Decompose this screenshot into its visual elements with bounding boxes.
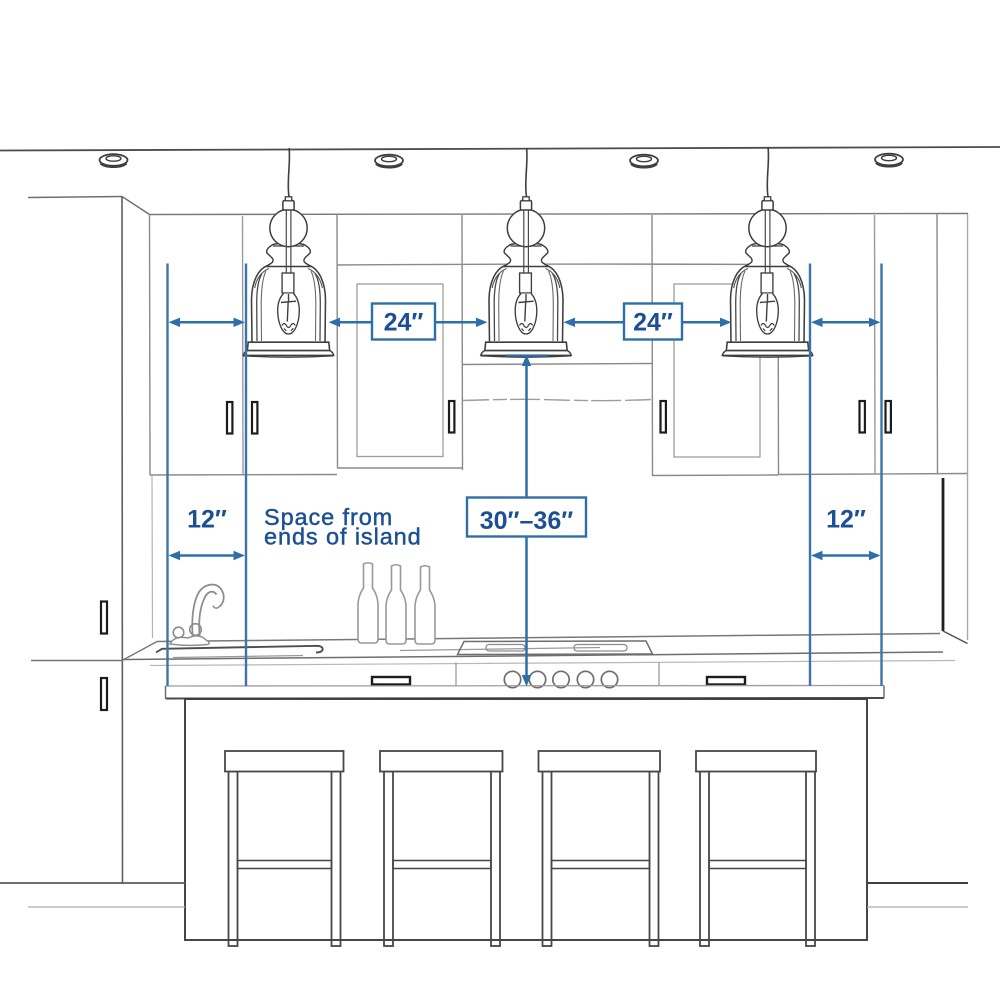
svg-text:24″: 24″ <box>384 309 424 337</box>
svg-text:24″: 24″ <box>633 309 673 337</box>
svg-text:ends of island: ends of island <box>264 524 422 550</box>
svg-text:30″–36″: 30″–36″ <box>480 507 573 535</box>
svg-text:12″: 12″ <box>826 506 866 534</box>
svg-text:12″: 12″ <box>187 506 227 534</box>
